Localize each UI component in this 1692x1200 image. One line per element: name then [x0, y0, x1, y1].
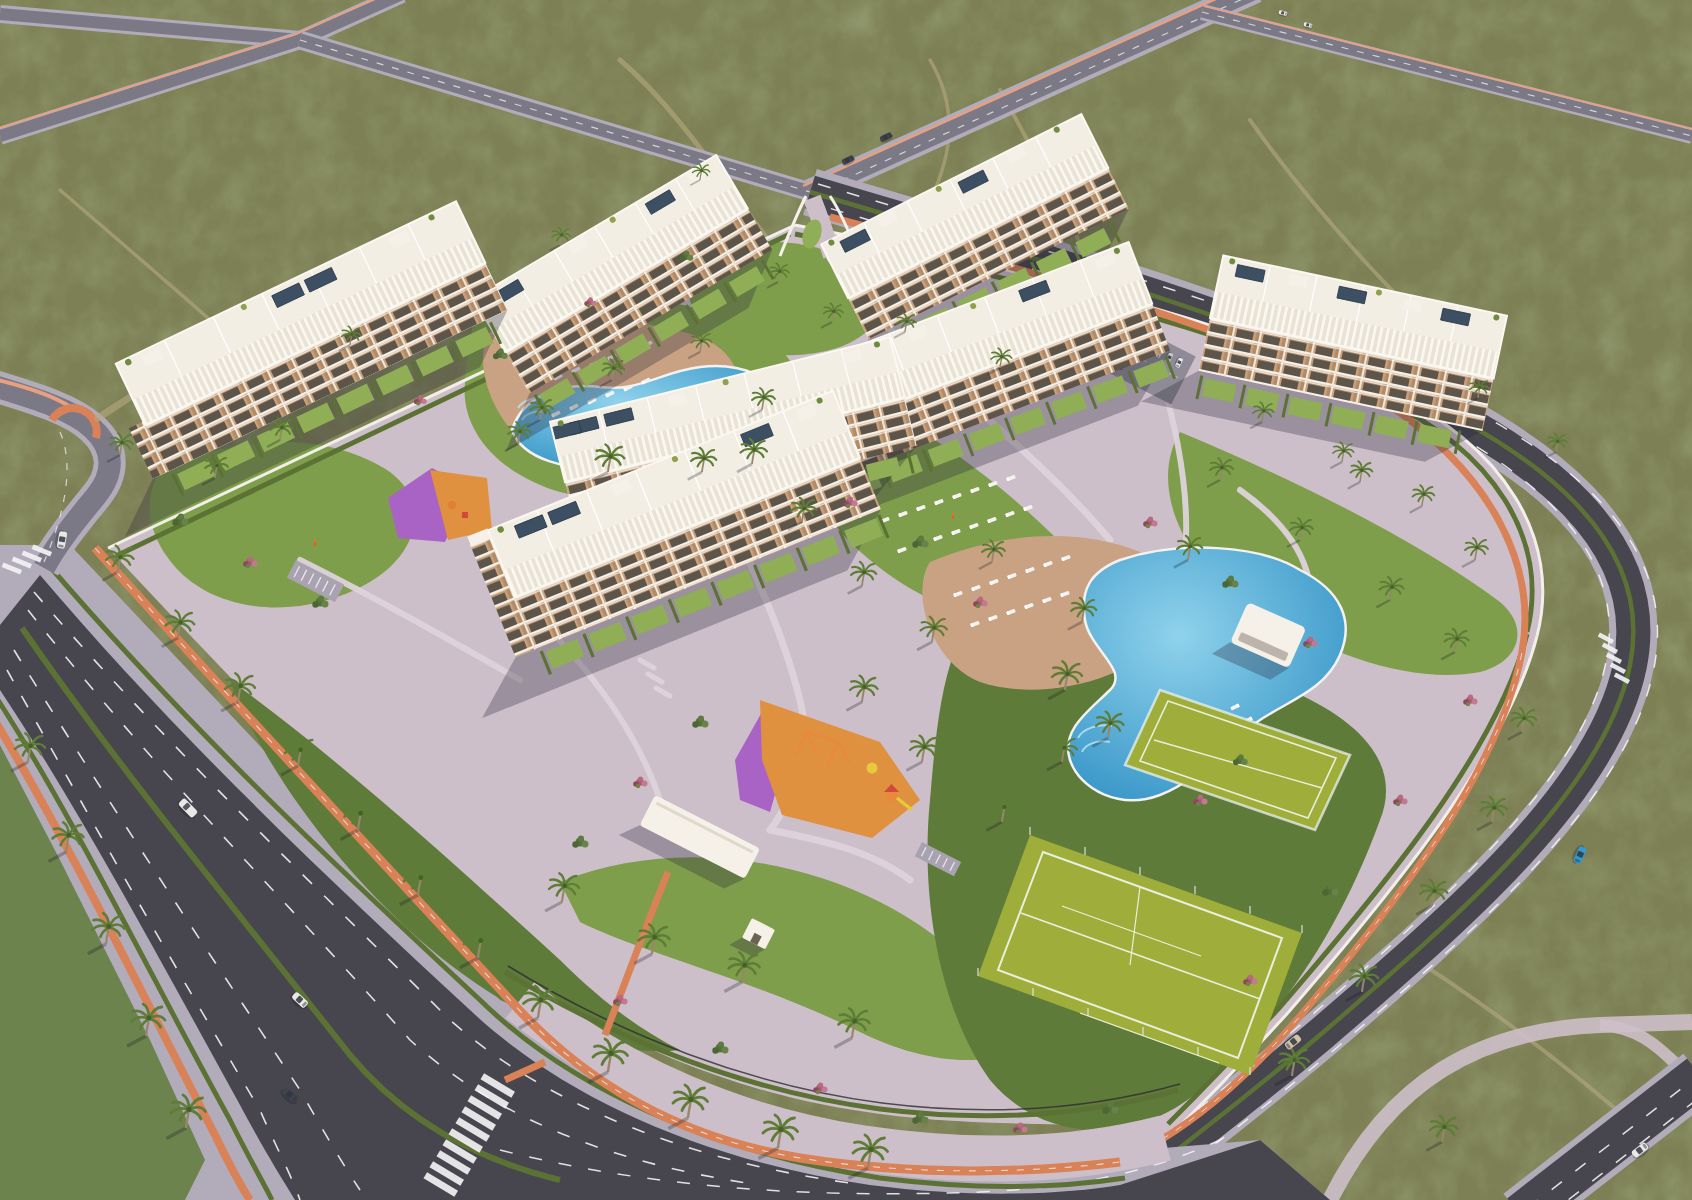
parasol: [867, 763, 878, 774]
play-cube: [462, 512, 468, 518]
aerial-render: [0, 0, 1692, 1200]
climber: [448, 501, 456, 509]
scene-canvas: [0, 0, 1692, 1200]
